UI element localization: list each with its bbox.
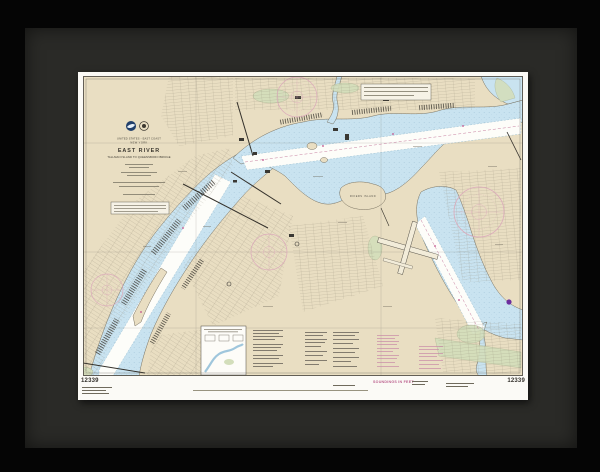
compass-rose [251, 234, 287, 270]
matte: UNITED STATES - EAST COAST NEW YORK EAST… [25, 28, 577, 448]
fine-print-bar [82, 387, 112, 388]
fine-print-bar [82, 393, 109, 394]
north-brother-island [307, 143, 317, 150]
top-info-table [361, 84, 431, 100]
soundings-in-feet-label: SOUNDINGS IN FEET [373, 380, 414, 384]
nautical-chart-map: UNITED STATES - EAST COAST NEW YORK EAST… [83, 76, 523, 376]
compass-rose [277, 77, 317, 117]
fine-print-bar [412, 381, 428, 382]
compass-rose [454, 187, 504, 237]
state-line: NEW YORK [130, 141, 147, 145]
fine-print-bar [82, 390, 106, 391]
compass-rose [91, 274, 123, 306]
chart-number-left: 12339 [81, 378, 99, 384]
fine-print-bar [333, 385, 355, 386]
framed-chart-product-photo: { "artwork": { "kind": "framed nautical … [0, 0, 600, 472]
restricted-area-marker [506, 299, 511, 304]
noaa-logo [126, 121, 136, 131]
fine-print-bar [412, 384, 425, 385]
south-brother-island [321, 158, 328, 163]
chart-subtitle: TALLMAN ISLAND TO QUEENSBORO BRIDGE [107, 155, 170, 159]
chart-number-right: 12339 [507, 378, 525, 384]
country-line: UNITED STATES - EAST COAST [117, 137, 161, 141]
chart-title: EAST RIVER [118, 148, 160, 154]
chart-paper: UNITED STATES - EAST COAST NEW YORK EAST… [78, 72, 528, 400]
fine-print-bar [446, 386, 468, 387]
fine-print-bar [446, 383, 474, 384]
inset-map [201, 326, 246, 375]
fine-print-bar [193, 390, 368, 391]
rikers-island-label: RIKERS ISLAND [350, 194, 376, 198]
